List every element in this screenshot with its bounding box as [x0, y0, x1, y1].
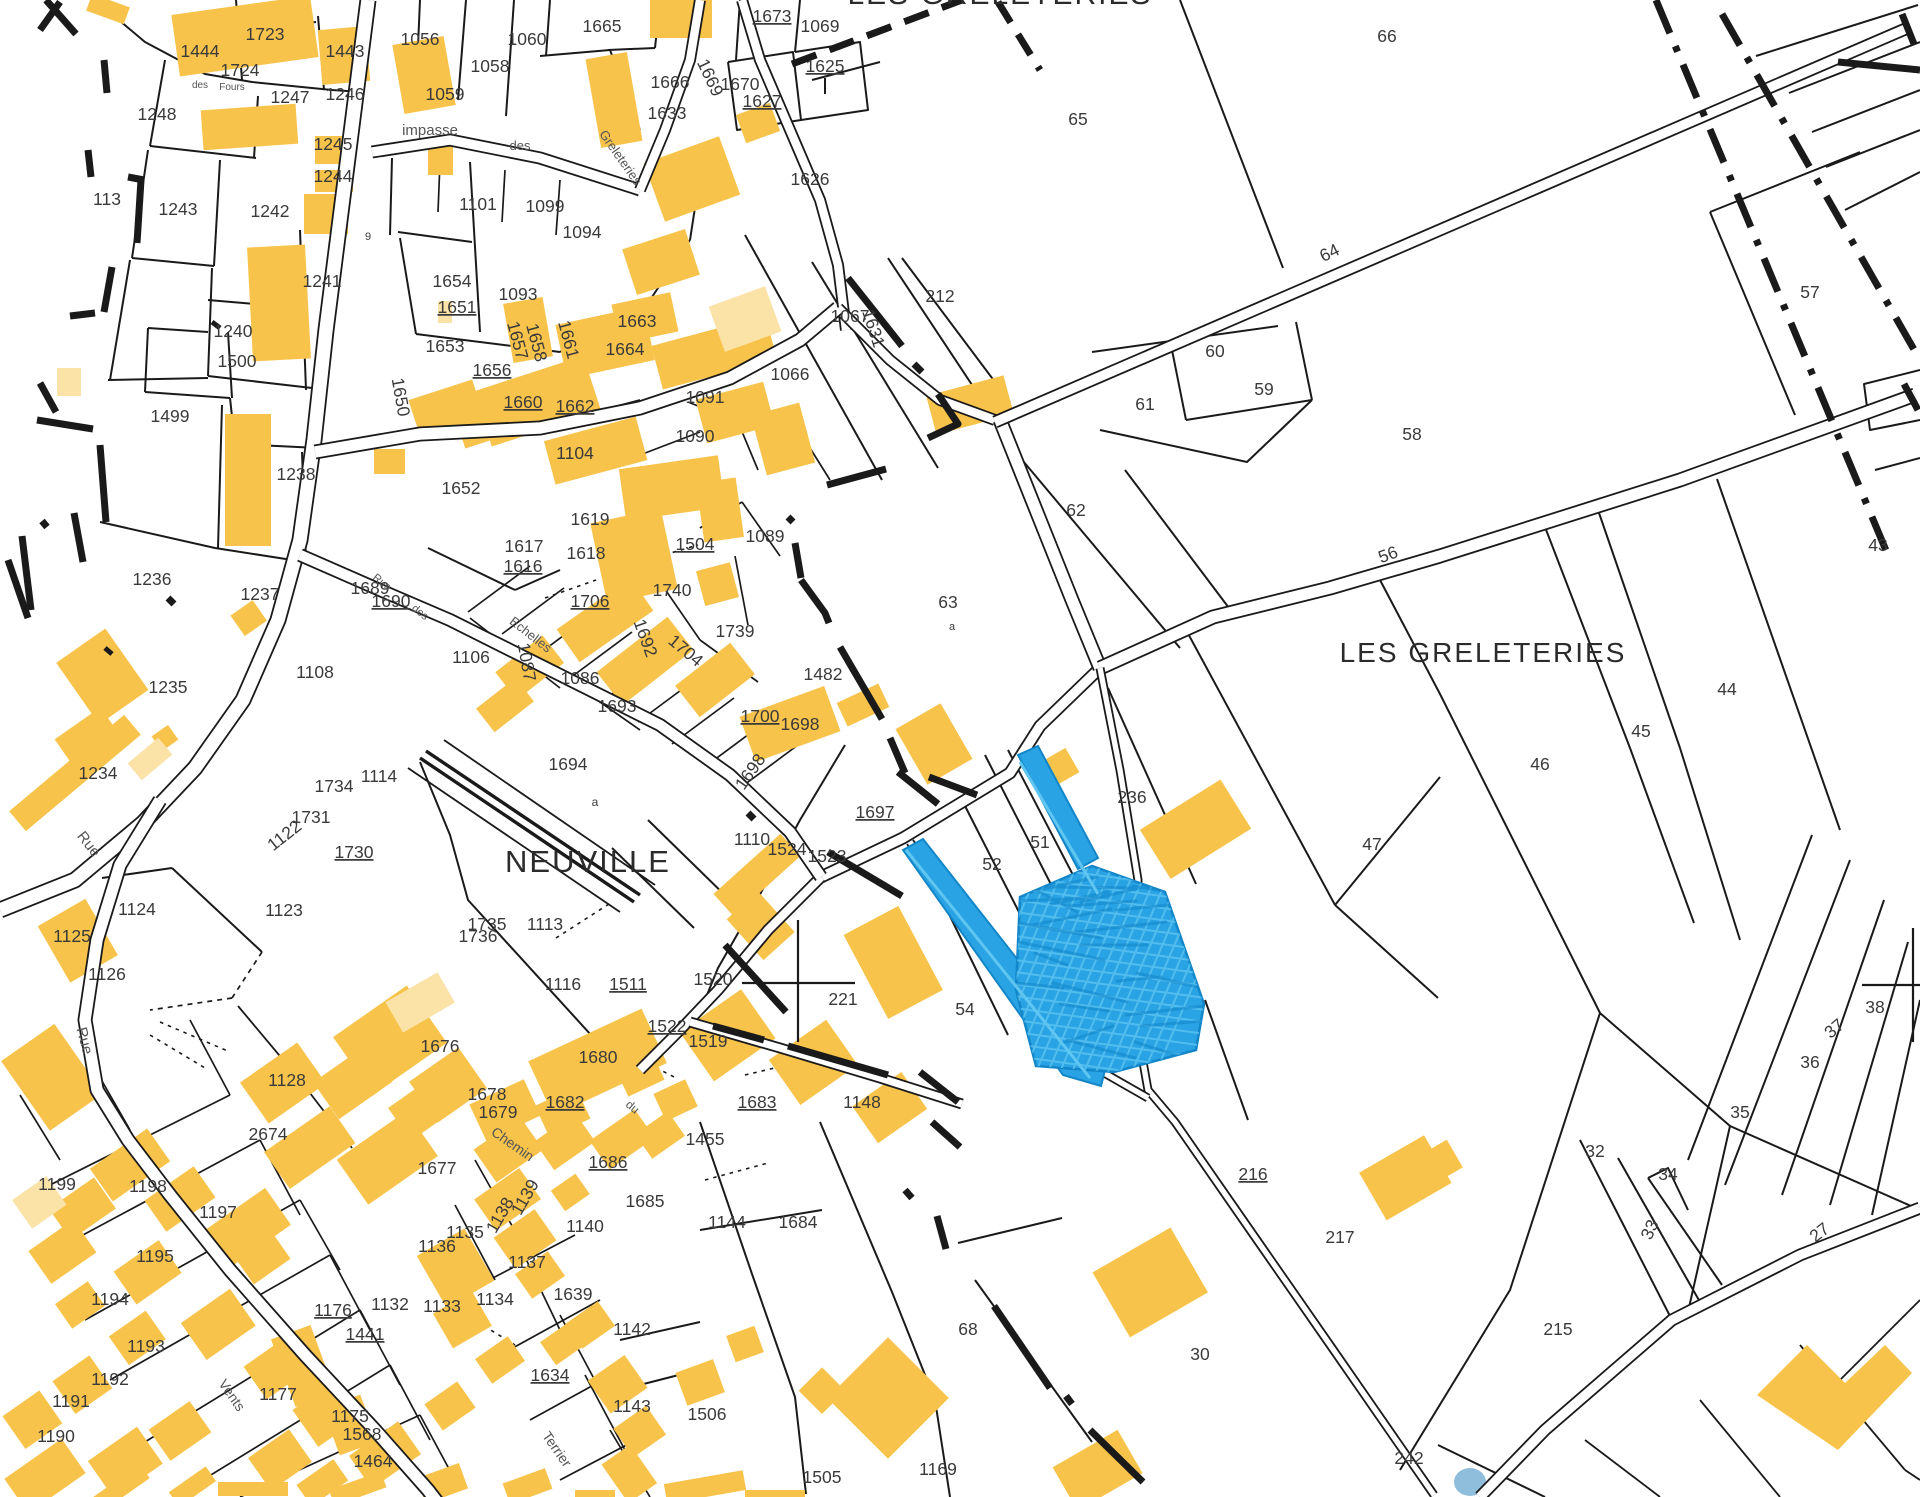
svg-text:1089: 1089	[746, 526, 785, 546]
svg-text:1723: 1723	[246, 24, 285, 44]
svg-text:1685: 1685	[626, 1191, 665, 1211]
svg-text:LES GRELETERIES: LES GRELETERIES	[1340, 637, 1627, 668]
svg-text:1238: 1238	[277, 464, 316, 484]
svg-text:1724: 1724	[221, 60, 260, 80]
svg-text:68: 68	[958, 1319, 977, 1339]
svg-text:1700: 1700	[741, 706, 780, 726]
svg-text:LES GRELETERIES: LES GRELETERIES	[847, 0, 1152, 11]
svg-text:1242: 1242	[251, 201, 290, 221]
svg-text:1134: 1134	[476, 1289, 514, 1309]
svg-text:1192: 1192	[91, 1369, 129, 1389]
svg-text:1091: 1091	[686, 387, 725, 407]
svg-text:1194: 1194	[91, 1289, 129, 1309]
svg-text:1734: 1734	[315, 776, 354, 796]
svg-text:1504: 1504	[676, 534, 715, 554]
svg-text:212: 212	[925, 286, 954, 306]
svg-text:a: a	[949, 621, 956, 633]
svg-text:1654: 1654	[433, 271, 472, 291]
svg-text:1056: 1056	[401, 29, 440, 49]
svg-text:1066: 1066	[771, 364, 810, 384]
svg-text:1123: 1123	[265, 900, 303, 920]
svg-text:1706: 1706	[571, 591, 610, 611]
svg-text:2674: 2674	[249, 1124, 288, 1144]
svg-text:1690: 1690	[372, 591, 411, 611]
svg-text:1132: 1132	[371, 1294, 409, 1314]
svg-text:1736: 1736	[459, 926, 498, 946]
svg-text:1093: 1093	[499, 284, 538, 304]
svg-text:1505: 1505	[803, 1467, 842, 1487]
svg-text:58: 58	[1402, 424, 1421, 444]
svg-text:34: 34	[1658, 1164, 1678, 1184]
svg-text:1234: 1234	[79, 763, 118, 783]
svg-text:1169: 1169	[919, 1459, 957, 1479]
svg-text:1058: 1058	[471, 56, 510, 76]
svg-text:1195: 1195	[136, 1246, 174, 1266]
svg-text:1245: 1245	[314, 134, 353, 154]
svg-text:1619: 1619	[571, 509, 610, 529]
svg-text:61: 61	[1135, 394, 1154, 414]
svg-text:1110: 1110	[734, 829, 771, 849]
svg-text:1653: 1653	[426, 336, 465, 356]
svg-text:impasse: impasse	[402, 122, 458, 139]
svg-text:1108: 1108	[296, 662, 334, 682]
svg-text:a: a	[592, 795, 599, 809]
svg-text:1140: 1140	[566, 1216, 604, 1236]
svg-text:1627: 1627	[743, 91, 782, 111]
svg-text:1142: 1142	[613, 1319, 651, 1339]
svg-text:59: 59	[1254, 379, 1273, 399]
svg-text:1104: 1104	[556, 443, 594, 463]
svg-text:1664: 1664	[606, 339, 645, 359]
svg-text:1651: 1651	[438, 297, 477, 317]
svg-text:1678: 1678	[468, 1084, 507, 1104]
svg-text:1243: 1243	[159, 199, 198, 219]
svg-text:1177: 1177	[259, 1384, 297, 1404]
svg-text:1059: 1059	[426, 84, 465, 104]
svg-text:1444: 1444	[181, 41, 220, 61]
svg-text:60: 60	[1205, 341, 1225, 361]
svg-text:1698: 1698	[781, 714, 820, 734]
svg-text:1069: 1069	[801, 16, 840, 36]
svg-text:221: 221	[828, 989, 857, 1009]
svg-text:47: 47	[1362, 834, 1381, 854]
svg-text:1106: 1106	[452, 647, 490, 667]
svg-text:1679: 1679	[479, 1102, 518, 1122]
svg-text:1198: 1198	[129, 1176, 167, 1196]
svg-text:1662: 1662	[556, 396, 595, 416]
svg-text:1128: 1128	[268, 1070, 306, 1090]
svg-text:1680: 1680	[579, 1047, 618, 1067]
svg-text:des: des	[192, 80, 208, 91]
svg-text:216: 216	[1238, 1164, 1267, 1184]
svg-text:1240: 1240	[214, 321, 253, 341]
svg-text:1126: 1126	[88, 964, 126, 984]
svg-text:1116: 1116	[545, 974, 581, 994]
svg-text:1660: 1660	[504, 392, 543, 412]
svg-text:1697: 1697	[856, 802, 895, 822]
svg-text:44: 44	[1717, 679, 1737, 699]
svg-text:1244: 1244	[314, 166, 353, 186]
svg-text:1455: 1455	[686, 1129, 725, 1149]
svg-text:236: 236	[1117, 787, 1146, 807]
svg-text:1524: 1524	[768, 839, 807, 859]
svg-text:1236: 1236	[133, 569, 172, 589]
svg-text:1673: 1673	[753, 6, 792, 26]
svg-text:1625: 1625	[806, 56, 845, 76]
svg-text:1114: 1114	[361, 766, 398, 786]
svg-text:242: 242	[1394, 1448, 1423, 1468]
svg-text:1191: 1191	[52, 1391, 90, 1411]
svg-text:217: 217	[1325, 1227, 1354, 1247]
svg-text:Fours: Fours	[219, 82, 245, 93]
svg-text:54: 54	[955, 999, 975, 1019]
svg-text:1190: 1190	[37, 1426, 75, 1446]
svg-text:1666: 1666	[651, 72, 690, 92]
svg-text:1193: 1193	[127, 1336, 165, 1356]
svg-text:1568: 1568	[343, 1424, 382, 1444]
svg-text:113: 113	[93, 189, 121, 209]
svg-text:32: 32	[1585, 1141, 1604, 1161]
svg-text:9: 9	[365, 231, 371, 243]
svg-text:1101: 1101	[459, 194, 497, 214]
svg-text:1730: 1730	[335, 842, 374, 862]
svg-text:1124: 1124	[118, 899, 156, 919]
svg-text:215: 215	[1543, 1319, 1572, 1339]
svg-text:1137: 1137	[508, 1252, 546, 1272]
svg-text:1235: 1235	[149, 677, 188, 697]
svg-text:1520: 1520	[694, 969, 733, 989]
svg-text:52: 52	[982, 854, 1001, 874]
svg-text:1682: 1682	[546, 1092, 585, 1112]
svg-text:1676: 1676	[421, 1036, 460, 1056]
svg-text:1135: 1135	[446, 1222, 484, 1242]
svg-text:1739: 1739	[716, 621, 755, 641]
svg-text:30: 30	[1190, 1344, 1210, 1364]
svg-text:1506: 1506	[688, 1404, 727, 1424]
svg-text:1441: 1441	[346, 1324, 385, 1344]
svg-text:1683: 1683	[738, 1092, 777, 1112]
svg-text:1500: 1500	[218, 351, 257, 371]
svg-text:1248: 1248	[138, 104, 177, 124]
svg-text:1246: 1246	[326, 84, 365, 104]
svg-text:45: 45	[1631, 721, 1650, 741]
svg-text:1618: 1618	[567, 543, 606, 563]
svg-text:1633: 1633	[648, 103, 687, 123]
svg-text:43: 43	[1868, 535, 1887, 555]
svg-text:1199: 1199	[38, 1174, 76, 1194]
svg-text:62: 62	[1066, 500, 1085, 520]
svg-text:1125: 1125	[53, 926, 91, 946]
svg-text:1482: 1482	[804, 664, 843, 684]
svg-text:1634: 1634	[531, 1365, 570, 1385]
svg-text:1519: 1519	[689, 1031, 728, 1051]
svg-text:1639: 1639	[554, 1284, 593, 1304]
svg-text:1086: 1086	[561, 668, 600, 688]
svg-text:1522: 1522	[648, 1016, 687, 1036]
svg-text:1499: 1499	[151, 406, 190, 426]
svg-text:1247: 1247	[271, 87, 310, 107]
svg-text:51: 51	[1030, 832, 1049, 852]
svg-text:38: 38	[1865, 997, 1884, 1017]
svg-text:NEUVILLE: NEUVILLE	[505, 844, 671, 879]
svg-text:1656: 1656	[473, 360, 512, 380]
svg-text:1443: 1443	[326, 41, 365, 61]
svg-text:1677: 1677	[418, 1158, 457, 1178]
svg-text:1616: 1616	[504, 556, 543, 576]
svg-text:1176: 1176	[314, 1300, 352, 1320]
svg-text:1617: 1617	[505, 536, 544, 556]
svg-text:1693: 1693	[598, 696, 637, 716]
svg-text:57: 57	[1800, 282, 1819, 302]
svg-text:1144: 1144	[708, 1212, 746, 1232]
svg-text:1143: 1143	[613, 1396, 651, 1416]
svg-text:35: 35	[1730, 1102, 1749, 1122]
svg-text:1740: 1740	[653, 580, 692, 600]
svg-text:1094: 1094	[563, 222, 602, 242]
svg-text:1090: 1090	[676, 426, 715, 446]
svg-text:1626: 1626	[791, 169, 830, 189]
svg-text:1241: 1241	[303, 271, 342, 291]
svg-text:36: 36	[1800, 1052, 1819, 1072]
svg-text:1237: 1237	[241, 584, 280, 604]
svg-text:63: 63	[938, 592, 957, 612]
svg-text:1099: 1099	[526, 196, 565, 216]
svg-text:1060: 1060	[508, 29, 547, 49]
svg-text:1113: 1113	[527, 914, 563, 934]
svg-text:1652: 1652	[442, 478, 481, 498]
svg-text:46: 46	[1530, 754, 1549, 774]
svg-text:1175: 1175	[331, 1406, 369, 1426]
svg-text:1694: 1694	[549, 754, 588, 774]
svg-text:1133: 1133	[423, 1296, 461, 1316]
svg-text:65: 65	[1068, 109, 1087, 129]
svg-text:1148: 1148	[843, 1092, 881, 1112]
svg-text:1197: 1197	[199, 1202, 237, 1222]
svg-text:1663: 1663	[618, 311, 657, 331]
svg-text:1464: 1464	[354, 1451, 393, 1471]
svg-text:des: des	[510, 138, 531, 153]
svg-text:1665: 1665	[583, 16, 622, 36]
svg-text:1523: 1523	[808, 846, 847, 866]
svg-text:1511: 1511	[609, 974, 647, 994]
svg-text:1684: 1684	[779, 1212, 818, 1232]
svg-text:1686: 1686	[589, 1152, 628, 1172]
svg-text:66: 66	[1377, 26, 1396, 46]
